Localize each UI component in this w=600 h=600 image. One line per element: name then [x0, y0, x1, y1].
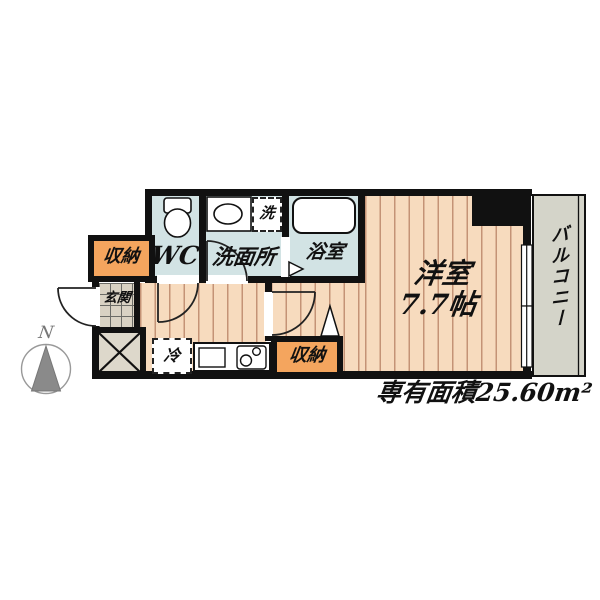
shaft-x-icon [99, 333, 140, 372]
bath-label: 浴室 [292, 242, 359, 263]
bath-folding-door-icon [289, 262, 303, 276]
washer-label: 洗 [250, 205, 284, 222]
balcony-window [522, 245, 533, 367]
closet-folding-door-icon [321, 306, 339, 336]
main-room-size: 7.7帖 [371, 290, 505, 321]
wc-door-swing [158, 283, 198, 322]
washbasin-icon [207, 197, 251, 231]
mainroom-door-swing [272, 292, 315, 335]
area-label: 専有面積25.60m² [328, 379, 594, 407]
genkan-label: 玄関 [95, 291, 139, 306]
balcony-label: バルコニー [545, 223, 571, 371]
bathtub-icon [293, 198, 355, 233]
kitchen-sink-icon [199, 348, 225, 367]
compass-north-label: N [29, 324, 64, 343]
toilet-icon [164, 198, 191, 237]
floor-plan: 収納 WC 洗面所 洗 浴室 玄関 冷 収納 洋室 7.7帖 バルコニー 専有面… [0, 0, 600, 600]
entrance-door-swing [58, 288, 96, 326]
main-room-name: 洋室 [375, 259, 509, 290]
stove-icon [237, 346, 266, 369]
main-room-label: 洋室 7.7帖 [371, 259, 510, 321]
washroom-label: 洗面所 [202, 245, 285, 268]
wc-label: WC [145, 242, 205, 270]
closet-top-label: 収納 [88, 247, 155, 267]
closet-bottom-label: 収納 [273, 346, 342, 366]
fridge-label: 冷 [151, 347, 193, 365]
compass-icon [22, 345, 71, 394]
fixtures-overlay [0, 0, 600, 600]
